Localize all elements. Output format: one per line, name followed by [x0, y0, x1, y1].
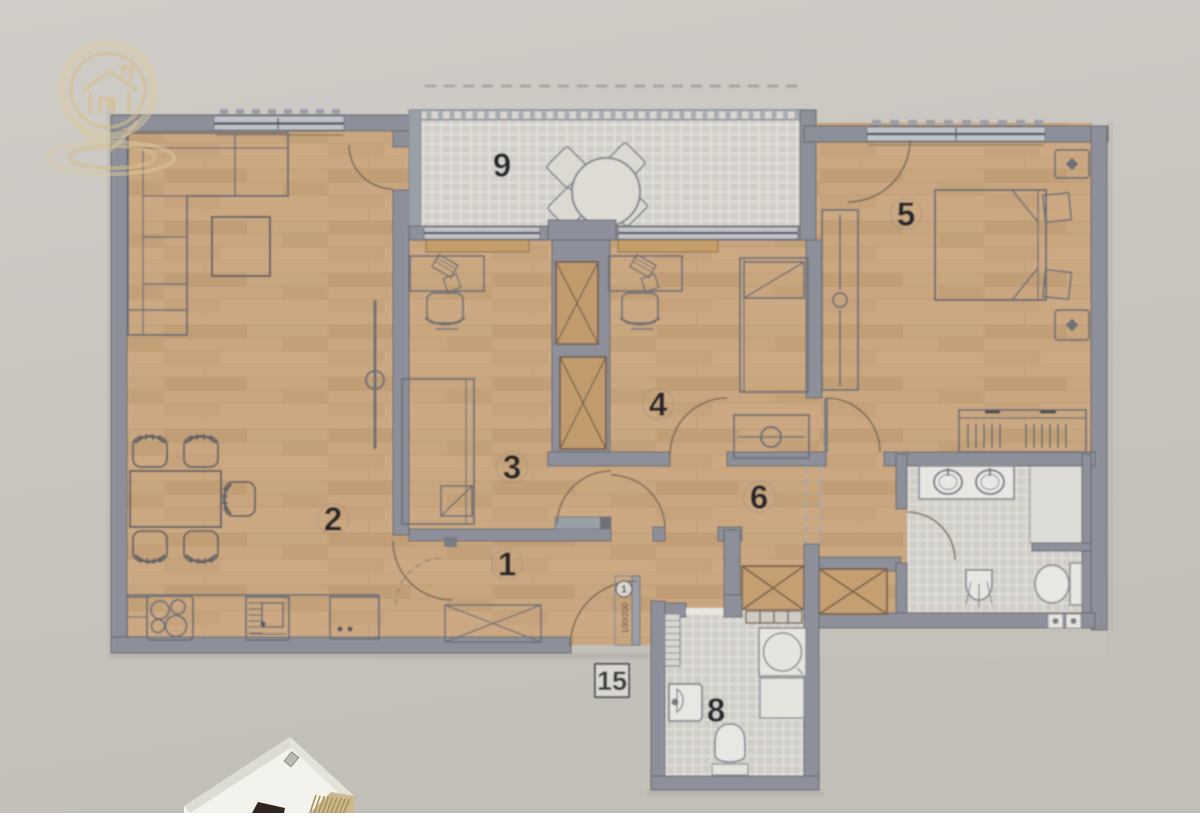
- svg-text:2: 2: [324, 501, 342, 538]
- svg-text:1: 1: [621, 585, 627, 596]
- svg-text:15: 15: [597, 666, 627, 696]
- svg-text:100/200: 100/200: [620, 602, 630, 633]
- svg-text:5: 5: [897, 196, 915, 233]
- svg-text:8: 8: [707, 692, 725, 729]
- svg-text:6: 6: [750, 479, 768, 516]
- svg-text:9: 9: [493, 147, 511, 184]
- svg-text:4: 4: [649, 386, 668, 423]
- svg-text:1: 1: [498, 546, 516, 583]
- svg-text:3: 3: [503, 449, 521, 486]
